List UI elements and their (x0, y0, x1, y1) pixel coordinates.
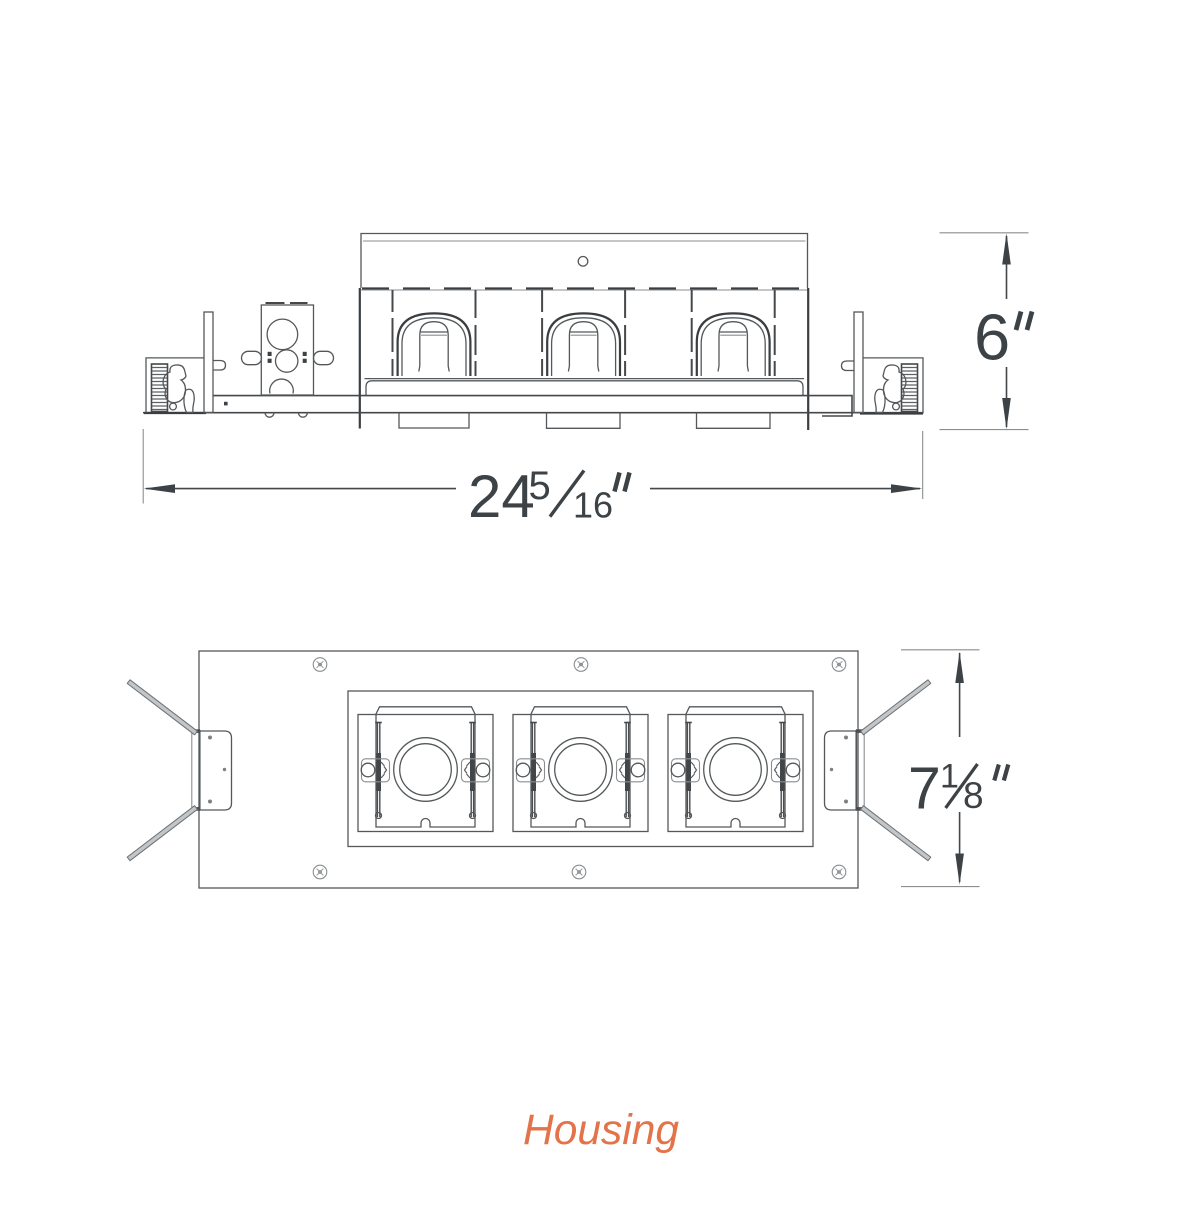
svg-text:5: 5 (529, 464, 551, 508)
svg-text:8: 8 (963, 775, 984, 816)
svg-text:16: 16 (573, 485, 613, 526)
svg-text:Housing: Housing (523, 1107, 679, 1154)
svg-text:7: 7 (908, 756, 941, 822)
svg-text:6: 6 (974, 301, 1010, 374)
svg-text:1: 1 (940, 758, 959, 796)
svg-text:24: 24 (468, 463, 535, 530)
